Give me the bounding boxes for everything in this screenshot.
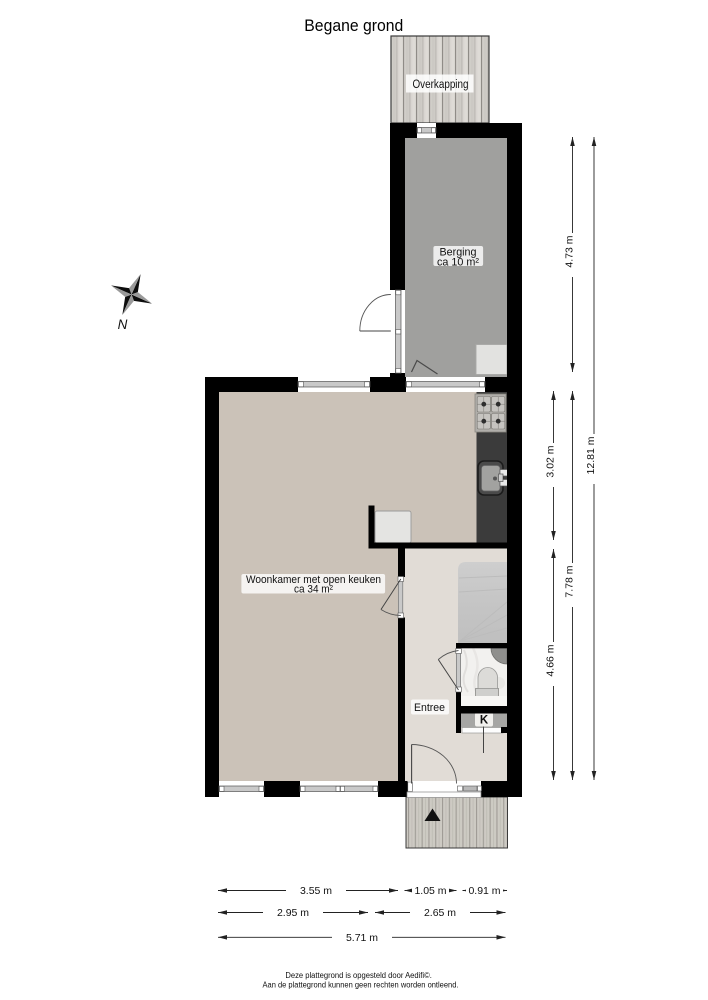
- svg-text:K: K: [480, 715, 489, 727]
- svg-text:Begane grond: Begane grond: [304, 17, 403, 35]
- svg-text:Overkapping: Overkapping: [413, 79, 469, 91]
- svg-text:12.81 m: 12.81 m: [585, 436, 597, 474]
- svg-text:N: N: [118, 317, 128, 332]
- svg-text:4.66 m: 4.66 m: [545, 644, 557, 676]
- svg-text:3.02 m: 3.02 m: [545, 445, 557, 477]
- svg-text:Deze plattegrond is opgesteld: Deze plattegrond is opgesteld door Aedif…: [285, 971, 432, 980]
- svg-text:Aan de plattegrond kunnen geen: Aan de plattegrond kunnen geen rechten w…: [263, 981, 459, 990]
- svg-text:Entree: Entree: [414, 702, 445, 714]
- svg-text:ca 10 m²: ca 10 m²: [437, 256, 479, 268]
- svg-text:ca 34 m²: ca 34 m²: [294, 584, 333, 596]
- svg-text:1.05 m: 1.05 m: [414, 885, 446, 897]
- svg-text:0.91 m: 0.91 m: [468, 885, 500, 897]
- svg-text:4.73 m: 4.73 m: [564, 235, 576, 267]
- svg-text:2.95 m: 2.95 m: [277, 907, 309, 919]
- svg-text:3.55 m: 3.55 m: [300, 885, 332, 897]
- svg-text:5.71 m: 5.71 m: [346, 932, 378, 944]
- svg-text:2.65 m: 2.65 m: [424, 907, 456, 919]
- svg-text:7.78 m: 7.78 m: [564, 565, 576, 597]
